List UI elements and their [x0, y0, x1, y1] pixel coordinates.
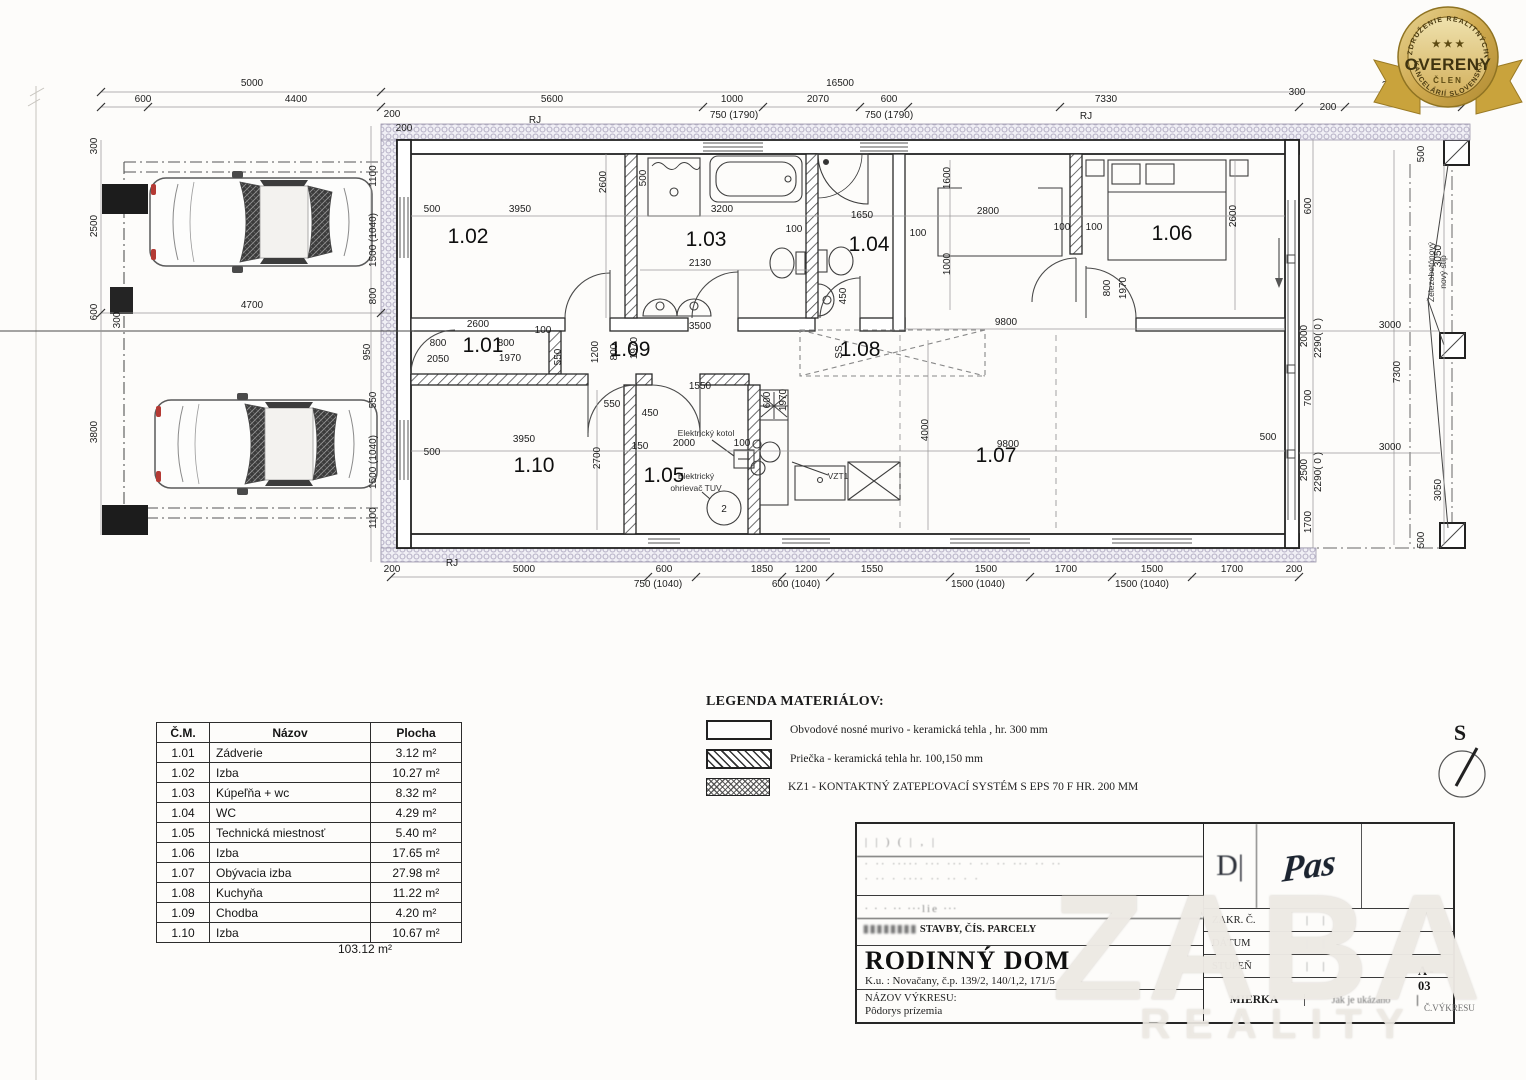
room-number-label: 1.08 [840, 338, 881, 361]
table-total-area: 103.12 m² [300, 942, 430, 956]
dimension-label: 600 [762, 391, 773, 408]
table-cell: 4.20 m² [371, 903, 462, 923]
table-cell: WC [210, 803, 371, 823]
dimension-label: 750 (1790) [865, 110, 913, 121]
table-row: 1.05Technická miestnosť5.40 m² [157, 823, 462, 843]
dimension-label: 2000 [1299, 324, 1310, 347]
ceiling-hatch [800, 330, 985, 376]
dimension-label: Elektrický kotol [678, 428, 735, 438]
dimension-label: 2290( 0 ) [1313, 318, 1324, 358]
dimension-label: nový stĺp [1437, 255, 1448, 289]
faded-text: ∙ ∙∙ ∙∙∙∙∙ ∙∙∙ ∙∙∙ ∙ ∙∙ ∙∙ ∙∙∙ ∙∙ ∙∙ [857, 857, 1203, 872]
carport-post [102, 184, 148, 214]
table-cell: 11.22 m² [371, 883, 462, 903]
table-cell: Izba [210, 763, 371, 783]
carport-post [102, 505, 148, 535]
table-header: Názov [210, 723, 371, 743]
scale-label: MIERKA [1204, 994, 1305, 1006]
project-location: K.u. : Novačany, č.p. 139/2, 140/1,2, 17… [865, 975, 1195, 987]
table-cell: Kúpeľňa + wc [210, 783, 371, 803]
dimension-label: 1970 [1118, 276, 1129, 299]
heater-number: 2 [721, 504, 727, 515]
dimension-label: 800 [368, 287, 379, 304]
table-cell: 4.29 m² [371, 803, 462, 823]
dimension-label: 750 (1040) [634, 579, 682, 590]
dimension-label: 2600 [467, 319, 490, 330]
carport [102, 162, 391, 535]
field-label: DÁTUM [1204, 938, 1306, 949]
table-cell: 1.10 [157, 923, 210, 943]
dimension-label: 2290( 0 ) [1313, 452, 1324, 492]
carport-post [110, 287, 133, 314]
dimension-label: 1500 (1040) [368, 435, 379, 489]
dimension-label: 100 [535, 325, 552, 336]
bearing-wall-swatch [706, 720, 772, 740]
dimension-label: 100 [786, 224, 803, 235]
parcel-row: ▮▮▮▮▮▮▮▮ STAVBY, ČÍS. PARCELY [857, 919, 1203, 946]
dimension-label: 600 [881, 94, 898, 105]
dimension-label: 300 [1289, 87, 1306, 98]
project-row: RODINNÝ DOM K.u. : Novačany, č.p. 139/2,… [857, 946, 1203, 990]
table-row: 1.02Izba10.27 m² [157, 763, 462, 783]
dimension-label: 1650 [851, 210, 874, 221]
drawing-name: Pôdorys prízemia [865, 1005, 1195, 1017]
table-cell: 1.08 [157, 883, 210, 903]
dining-table [938, 188, 1062, 256]
empty-cell [1362, 824, 1453, 908]
room-number-label: 1.07 [976, 444, 1017, 467]
signature-area: D| Pas [1204, 824, 1453, 909]
room-number-label: 1.01 [463, 334, 504, 357]
table-header: Č.M. [157, 723, 210, 743]
table-cell: Izba [210, 843, 371, 863]
table-cell: Chodba [210, 903, 371, 923]
dimension-label: 500 [1260, 432, 1277, 443]
partition-swatch [706, 749, 772, 769]
scale-value: Jak je ukázáno [1305, 995, 1418, 1006]
table-cell: 1.05 [157, 823, 210, 843]
faded-text: ▮▮▮▮▮▮▮▮ [863, 924, 917, 935]
dimension-label: 1100 [368, 165, 379, 187]
dimension-label: 1500 (1040) [951, 579, 1005, 590]
dimension-label: 1000 [942, 252, 953, 275]
dimension-label: 1550 [689, 381, 712, 392]
dimension-label: 1100 [368, 507, 379, 529]
dimension-label: 4000 [920, 418, 931, 441]
dimension-label: 2500 [89, 214, 100, 237]
dimension-label: 1700 [1055, 564, 1078, 575]
table-cell: 10.67 m² [371, 923, 462, 943]
drawing-number-value: A - 03 [1418, 964, 1439, 994]
field-stupen: STUPEŇ | | [1204, 955, 1453, 978]
field-zakr: ZAKR. Č. | | [1204, 909, 1453, 932]
dimension-label: 700 [1303, 389, 1314, 406]
dimension-label: 550 [368, 391, 379, 408]
room-number-label: 1.04 [849, 233, 890, 256]
scale-row: MIERKA Jak je ukázáno Č.VÝKRESU A - 03 [1204, 978, 1453, 1022]
project-title: RODINNÝ DOM [865, 948, 1195, 974]
dimension-label: 3000 [1379, 442, 1402, 453]
dimension-label: Železobetónový [1426, 241, 1436, 302]
field-value: | | [1306, 915, 1453, 926]
table-row: 1.04WC4.29 m² [157, 803, 462, 823]
dimension-label: 2130 [689, 258, 712, 269]
dimension-label: 2070 [807, 94, 830, 105]
dimension-label: 1000 [721, 94, 744, 105]
table-cell: 1.03 [157, 783, 210, 803]
dimension-label: 1600 [942, 166, 953, 189]
table-cell: 5.40 m² [371, 823, 462, 843]
dimension-label: 3950 [509, 204, 532, 215]
dimension-label: 200 [384, 109, 401, 120]
dimension-label: 800 [1102, 279, 1113, 296]
field-datum: DÁTUM | | [1204, 932, 1453, 955]
dimension-label: 550 [553, 348, 564, 365]
badge-subtitle: ČLEN [1433, 76, 1463, 85]
dimension-label: 3500 [689, 321, 712, 332]
dimension-label: 7330 [1095, 94, 1118, 105]
dimension-label: 16500 [826, 78, 854, 89]
table-cell: 1.06 [157, 843, 210, 863]
dimension-label: 4400 [285, 94, 308, 105]
room-number-label: 1.02 [448, 225, 489, 248]
dimension-label: 800 [430, 338, 447, 349]
signature-scribble: Pas [1281, 841, 1337, 891]
dimension-label: 1550 [861, 564, 884, 575]
north-compass: S [1439, 720, 1485, 797]
dimension-label: 600 (1040) [772, 579, 820, 590]
toilet [818, 250, 827, 272]
table-row: 1.03Kúpeľňa + wc8.32 m² [157, 783, 462, 803]
faded-text: ∙ ∙∙ ∙ ∙∙∙∙ ∙∙ ∙∙ ∙ ∙ [857, 872, 1203, 887]
car-top-view [150, 171, 372, 273]
insulation-swatch [706, 778, 770, 796]
legend-item-label: Priečka - keramická tehla hr. 100,150 mm [790, 753, 983, 765]
dimension-label: 2600 [1228, 204, 1239, 227]
legend-item-label: Obvodové nosné murivo - keramická tehla … [790, 724, 1048, 736]
table-row: 1.06Izba17.65 m² [157, 843, 462, 863]
dimension-label: 2050 [427, 354, 450, 365]
dimension-label: 4700 [241, 300, 264, 311]
dimension-label: 3000 [1379, 320, 1402, 331]
title-block-faded-row: ∙ ∙ ∙ ∙∙ ∙∙∙lie ∙∙∙ [857, 896, 1203, 919]
dimension-label: 500 [424, 204, 441, 215]
dimension-label: 600 [89, 303, 100, 320]
table-cell: 1.07 [157, 863, 210, 883]
table-cell: 8.32 m² [371, 783, 462, 803]
toilet [796, 252, 805, 274]
title-block: | | ) ( | ‚ | ∙ ∙∙ ∙∙∙∙∙ ∙∙∙ ∙∙∙ ∙ ∙∙ ∙∙… [855, 822, 1455, 1024]
table-cell: 17.65 m² [371, 843, 462, 863]
drawing-name-row: NÁZOV VÝKRESU: Pôdorys prízemia [857, 990, 1203, 1022]
dimension-label: 150 [632, 441, 649, 452]
dimension-label: 600 [656, 564, 673, 575]
table-row: 1.10Izba10.67 m² [157, 923, 462, 943]
dimension-label: 200 [1320, 102, 1337, 113]
dimension-label: VZT1 [828, 471, 849, 481]
dimension-label: 100 [1086, 222, 1103, 233]
parcel-label: STAVBY, ČÍS. PARCELY [917, 924, 1036, 935]
dimension-label: 1500 [1141, 564, 1164, 575]
table-row: 1.09Chodba4.20 m² [157, 903, 462, 923]
dimension-label: 1200 [590, 340, 601, 363]
title-block-faded-row: ∙ ∙∙ ∙∙∙∙∙ ∙∙∙ ∙∙∙ ∙ ∙∙ ∙∙ ∙∙∙ ∙∙ ∙∙ ∙ ∙… [857, 857, 1203, 896]
drawing-name-label: NÁZOV VÝKRESU: [865, 993, 1195, 1004]
dimension-label: 500 [638, 169, 649, 186]
floorplan-sheet: 2 500060044001650056001000750 (1790)2070… [0, 0, 1526, 1080]
fixtures [643, 154, 1248, 530]
dimension-label: 2700 [592, 446, 603, 469]
table-cell: 3.12 m² [371, 743, 462, 763]
dimension-label: 5000 [513, 564, 536, 575]
dimension-label: 950 [362, 343, 373, 360]
table-cell: Obývacia izba [210, 863, 371, 883]
table-cell: 1.02 [157, 763, 210, 783]
table-cell: 10.27 m² [371, 763, 462, 783]
room-number-label: 1.09 [610, 338, 651, 361]
dimension-label: 1970 [778, 388, 789, 411]
dimension-label: 100 [910, 228, 927, 239]
table-cell: Izba [210, 923, 371, 943]
table-cell: 1.01 [157, 743, 210, 763]
verified-badge: ZDRUŽENIE REALITNÝCH KANCELÁRIÍ SLOVENSK… [1374, 7, 1522, 114]
car-top-view [155, 393, 377, 495]
dimension-label: 2500 [1299, 458, 1310, 481]
dimension-label: 600 [1303, 197, 1314, 214]
dimension-label: 500 [1416, 145, 1427, 162]
field-label: STUPEŇ [1204, 961, 1306, 972]
dimension-label: RJ [1080, 111, 1092, 122]
dimension-label: 3050 [1433, 478, 1444, 501]
badge-stars: ★ ★ ★ [1432, 39, 1464, 50]
dimension-label: 3200 [711, 204, 734, 215]
room-number-label: 1.03 [686, 228, 727, 251]
dimension-label: 1500 [975, 564, 998, 575]
dimension-label: 2600 [598, 170, 609, 193]
material-legend-title: LEGENDA MATERIÁLOV: [706, 694, 1138, 710]
scan-artifacts [28, 86, 44, 1080]
dimension-label: 5600 [541, 94, 564, 105]
table-cell: Kuchyňa [210, 883, 371, 903]
dimension-label: 500 [1416, 531, 1427, 548]
dimension-lines [101, 92, 1462, 577]
dimension-label: 200 [1286, 564, 1303, 575]
field-label: ZAKR. Č. [1204, 915, 1306, 926]
legend-item: KZ1 - KONTAKTNÝ ZATEPĽOVACÍ SYSTÉM S EPS… [706, 778, 1138, 796]
bed [1086, 160, 1248, 260]
drawing-number-label: Č.VÝKRESU [1424, 1003, 1475, 1013]
north-label: S [1454, 720, 1466, 745]
dimension-label: 600 [135, 94, 152, 105]
badge-title: OVERENÝ [1405, 55, 1492, 74]
room-number-label: 1.06 [1152, 222, 1193, 245]
dimension-label: RJ [446, 558, 458, 569]
table-header: Plocha [371, 723, 462, 743]
dimension-label: 300 [89, 137, 100, 154]
dimension-label: 450 [642, 408, 659, 419]
table-row: 1.08Kuchyňa11.22 m² [157, 883, 462, 903]
table-cell: Technická miestnosť [210, 823, 371, 843]
room-number-label: 1.10 [514, 454, 555, 477]
dimension-label: 1850 [751, 564, 774, 575]
dimension-label: 550 [604, 399, 621, 410]
dimension-label: 450 [838, 287, 849, 304]
dimension-label: 750 (1790) [710, 110, 758, 121]
table-row: 1.01Zádverie3.12 m² [157, 743, 462, 763]
dimension-label: 9800 [995, 317, 1018, 328]
dimension-label: 1500 (1040) [368, 213, 379, 267]
dimension-label: 2800 [977, 206, 1000, 217]
room-legend-table: Č.M.NázovPlocha 1.01Zádverie3.12 m²1.02I… [156, 722, 462, 943]
legend-item-label: KZ1 - KONTAKTNÝ ZATEPĽOVACÍ SYSTÉM S EPS… [788, 781, 1138, 793]
table-row: 1.07Obývacia izba27.98 m² [157, 863, 462, 883]
field-value: | | [1306, 938, 1453, 949]
kitchen-counter [751, 390, 900, 505]
dimension-label: 300 [112, 311, 123, 328]
dimension-label: RJ [529, 115, 541, 126]
table-cell: 1.09 [157, 903, 210, 923]
dimension-label: 1700 [1221, 564, 1244, 575]
dimension-label: 500 [424, 447, 441, 458]
material-legend: LEGENDA MATERIÁLOV: Obvodové nosné muriv… [706, 694, 1138, 805]
dimension-label: 3950 [513, 434, 536, 445]
table-cell: Zádverie [210, 743, 371, 763]
legend-item: Obvodové nosné murivo - keramická tehla … [706, 720, 1138, 740]
dimension-label: 1700 [1303, 510, 1314, 533]
dimension-label: 100 [734, 438, 751, 449]
legend-item: Priečka - keramická tehla hr. 100,150 mm [706, 749, 1138, 769]
title-block-faded-row: | | ) ( | ‚ | [857, 824, 1203, 857]
table-cell: 1.04 [157, 803, 210, 823]
room-number-label: 1.05 [644, 464, 685, 487]
dimension-label: 1500 (1040) [1115, 579, 1169, 590]
dimension-label: 200 [384, 564, 401, 575]
table-cell: 27.98 m² [371, 863, 462, 883]
dimension-label: 7300 [1392, 360, 1403, 383]
dimension-label: 200 [396, 123, 413, 134]
dimension-label: 5000 [241, 78, 264, 89]
dimension-label: 3800 [89, 420, 100, 443]
dimension-label: 100 [1054, 222, 1071, 233]
dimension-label: 1200 [795, 564, 818, 575]
dimension-label: 2000 [673, 438, 696, 449]
signature-mark: D| [1204, 824, 1257, 908]
